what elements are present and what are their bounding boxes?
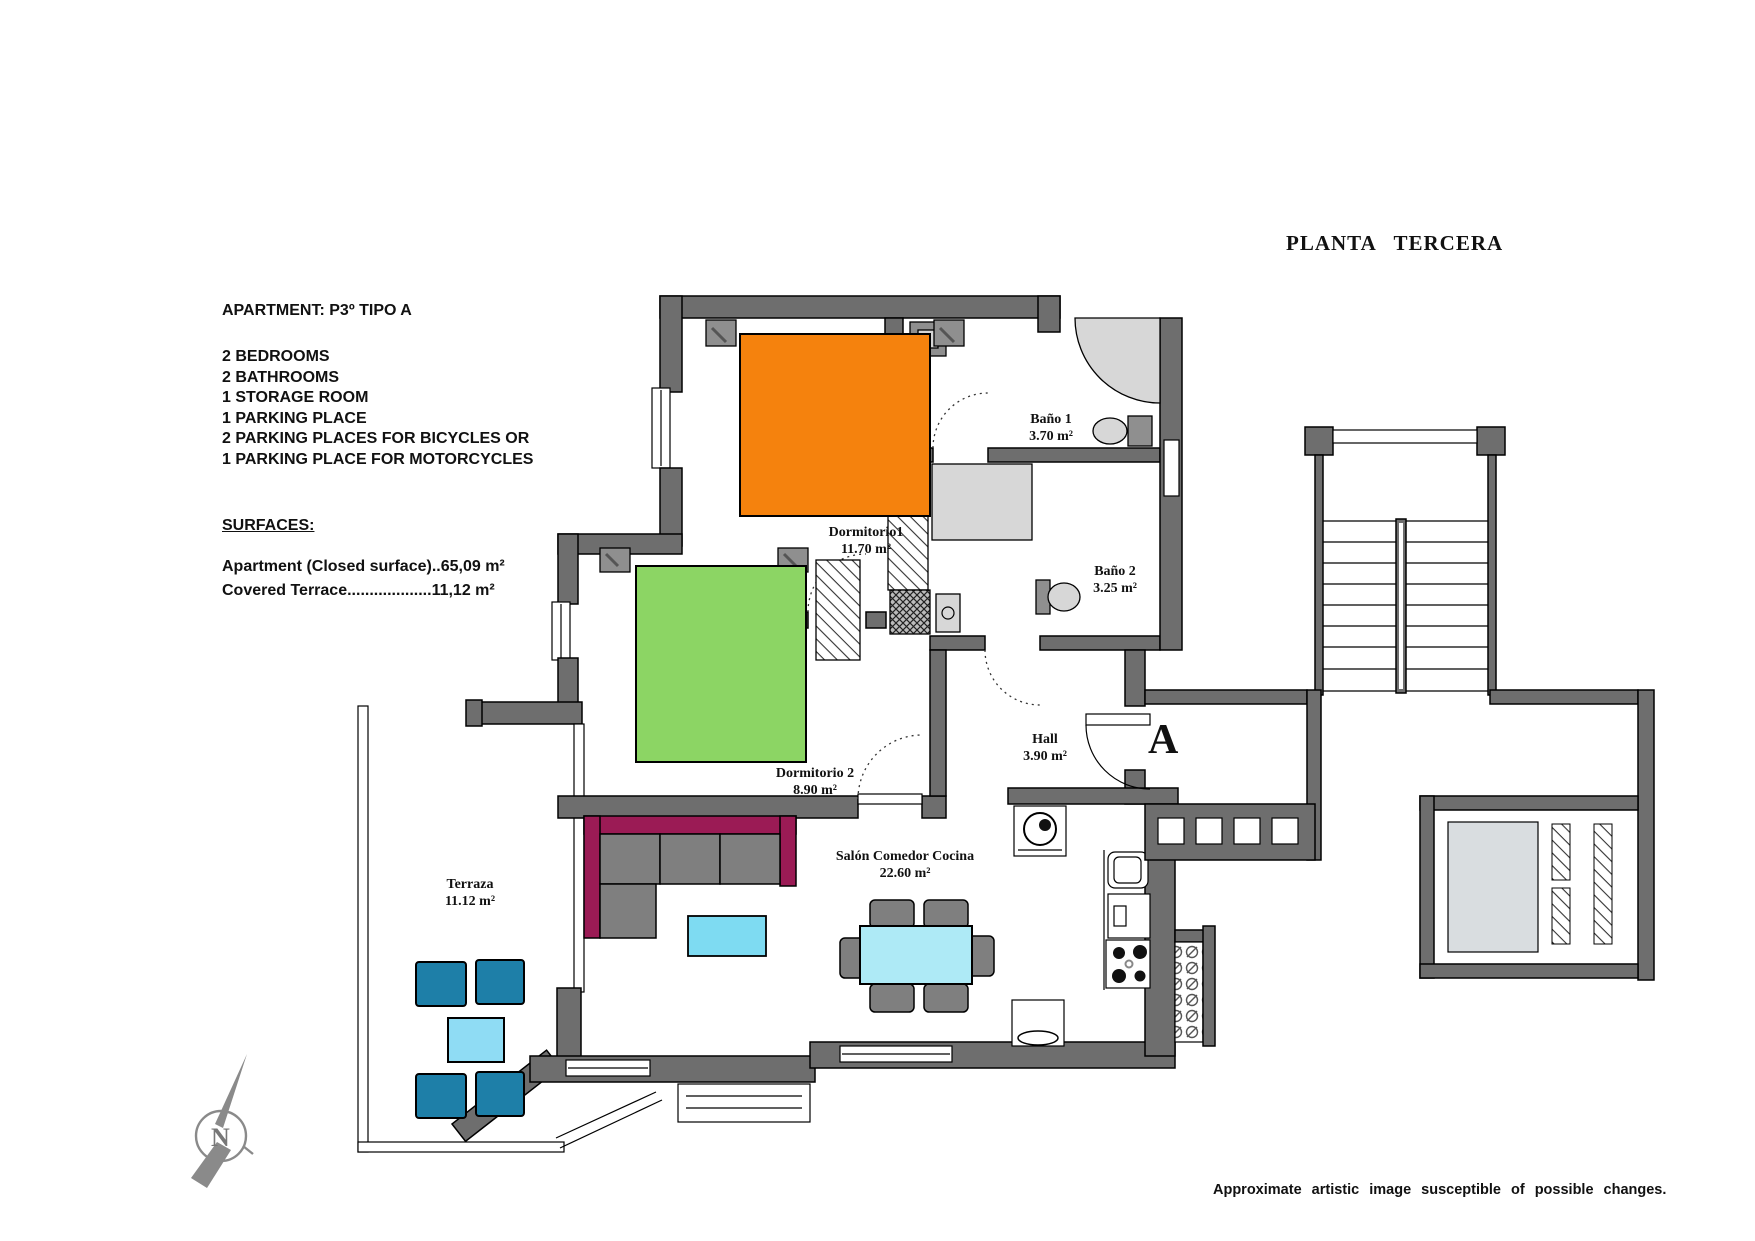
stair-treads-right xyxy=(1406,521,1488,691)
bed-bedroom2 xyxy=(636,566,806,762)
room-label-dormitorio2: Dormitorio 2 8.90 m² xyxy=(745,765,885,799)
room-label-terraza: Terraza 11.12 m² xyxy=(400,876,540,910)
sofa-cushion-1 xyxy=(600,834,660,884)
surface-item: Covered Terrace...................11,12 … xyxy=(222,579,505,603)
door-arc-bath1 xyxy=(933,393,988,448)
page-title: PLANTA TERCERA xyxy=(1286,231,1503,256)
sofa-cushion-3 xyxy=(720,834,780,884)
feature-item: 1 PARKING PLACE FOR MOTORCYCLES xyxy=(222,450,533,471)
burner-2 xyxy=(1133,945,1147,959)
feature-list: 2 BEDROOMS 2 BATHROOMS 1 STORAGE ROOM 1 … xyxy=(222,347,533,470)
dining-table xyxy=(860,926,972,984)
wall-top-right-pillar xyxy=(1038,296,1060,332)
wall-bedroom2-bottom xyxy=(558,796,858,818)
wardrobe-bedroom2 xyxy=(816,560,860,660)
stairwell xyxy=(1145,427,1638,860)
stair-top-beam xyxy=(1333,430,1477,443)
wall-storage-right xyxy=(1203,926,1215,1046)
bed-bedroom1 xyxy=(740,334,930,516)
sink-bath2 xyxy=(936,594,960,632)
terrace-chair-1 xyxy=(416,962,466,1006)
wall-bath1-bottom-b xyxy=(988,448,1160,462)
feature-item: 2 BEDROOMS xyxy=(222,347,533,368)
shaft-column xyxy=(890,590,930,634)
stair-divider-core xyxy=(1399,523,1403,689)
terrace-chair-2 xyxy=(476,960,524,1004)
sofa-arm-right xyxy=(780,816,796,886)
shower-bath1 xyxy=(1075,318,1160,403)
elevator-wall-top xyxy=(1420,796,1638,810)
stair-treads-left xyxy=(1323,521,1396,691)
terrace-chair-3 xyxy=(416,1074,466,1118)
room-name: Hall xyxy=(1032,732,1058,747)
wall-terrace-top xyxy=(478,702,582,724)
stair-pillar-left xyxy=(1305,427,1333,455)
railing-diagonal xyxy=(556,1092,662,1148)
wall-stair-bottom-right xyxy=(1490,690,1638,704)
nightstand-bedroom2-left xyxy=(600,548,630,572)
elevator-car xyxy=(1448,822,1538,952)
burner-4 xyxy=(1135,971,1146,982)
room-area: 3.25 m² xyxy=(1050,580,1180,597)
wall-bath2-bottom-b xyxy=(1040,636,1160,650)
walkway-opening-3 xyxy=(1234,818,1260,844)
dining-chair-bottom-2 xyxy=(924,984,968,1012)
wall-kitchen-top xyxy=(1008,788,1178,804)
wall-top xyxy=(660,296,1060,318)
walkway-opening-2 xyxy=(1196,818,1222,844)
feature-item: 2 BATHROOMS xyxy=(222,368,533,389)
storage-room-hatch xyxy=(1175,942,1203,1042)
burner-1 xyxy=(1113,947,1125,959)
sofa-cushion-2 xyxy=(660,834,720,884)
room-label-dormitorio1: Dormitorio1 11.70 m² xyxy=(796,524,936,558)
kitchen-counter-bottom xyxy=(1012,1000,1064,1046)
stair-pillar-right xyxy=(1477,427,1505,455)
elevator-wall-left xyxy=(1420,796,1434,978)
toilet-bath1-tank xyxy=(1128,416,1152,446)
compass-needle xyxy=(215,1054,247,1128)
burner-3 xyxy=(1112,969,1126,983)
footer-note: Approximate artistic image susceptible o… xyxy=(1213,1182,1666,1198)
sofa-back-top xyxy=(584,816,796,834)
elevator-hatch-1 xyxy=(1552,824,1570,880)
walkway-opening-4 xyxy=(1272,818,1298,844)
feature-item: 2 PARKING PLACES FOR BICYCLES OR xyxy=(222,429,533,450)
wall-hall-left xyxy=(930,650,946,796)
wall-bath2-bottom-a xyxy=(930,636,985,650)
walkway xyxy=(1145,804,1315,860)
room-name: Terraza xyxy=(447,877,494,892)
terrace-table xyxy=(448,1018,504,1062)
coffee-table xyxy=(688,916,766,956)
surfaces-heading: SURFACES: xyxy=(222,517,314,535)
terrace-post xyxy=(466,700,482,726)
room-area: 8.90 m² xyxy=(745,782,885,799)
door-arc-bath2 xyxy=(985,650,1040,705)
entrance-porch-steps xyxy=(678,1084,810,1122)
room-area: 3.90 m² xyxy=(975,748,1115,765)
railing-left xyxy=(358,706,368,1152)
room-label-hall: Hall 3.90 m² xyxy=(975,731,1115,765)
room-name: Dormitorio1 xyxy=(829,525,904,540)
terrace-furniture xyxy=(416,960,524,1118)
walkway-opening-1 xyxy=(1158,818,1184,844)
wall-hall-right-upper xyxy=(1125,650,1145,706)
compass-icon: N xyxy=(191,1054,253,1188)
shower-bath2 xyxy=(932,464,1032,540)
living-room-furniture xyxy=(584,816,994,1012)
wall-far-right xyxy=(1638,690,1654,980)
wall-left-upper xyxy=(660,296,682,392)
room-name: Dormitorio 2 xyxy=(776,766,854,781)
terrace-chair-4 xyxy=(476,1072,524,1116)
dining-chair-top-1 xyxy=(870,900,914,928)
feature-item: 1 PARKING PLACE xyxy=(222,409,533,430)
wall-landing-top xyxy=(1145,690,1307,704)
wall-bedroom2-left-upper xyxy=(558,534,578,604)
stair-wall-left xyxy=(1315,455,1323,695)
feature-item: 1 STORAGE ROOM xyxy=(222,388,533,409)
room-area: 11.12 m² xyxy=(400,893,540,910)
floor-plan-drawing: N xyxy=(0,0,1755,1241)
sofa-cushion-4 xyxy=(600,884,656,938)
floor-plan-page: N PLANTA TERCERA APARTMENT: P3º TIPO A 2… xyxy=(0,0,1755,1241)
room-name: Salón Comedor Cocina xyxy=(836,849,974,864)
room-name: Baño 2 xyxy=(1094,564,1136,579)
door-leaf-entrance xyxy=(1086,714,1150,725)
section-letter: A xyxy=(1148,716,1178,764)
window-bath xyxy=(1164,440,1179,496)
apartment-heading: APARTMENT: P3º TIPO A xyxy=(222,301,412,322)
room-area: 11.70 m² xyxy=(796,541,936,558)
compass-tick xyxy=(243,1146,253,1154)
elevator-block xyxy=(1420,690,1654,980)
dining-chair-top-2 xyxy=(924,900,968,928)
room-label-salon: Salón Comedor Cocina 22.60 m² xyxy=(825,848,985,882)
elevator-hatch-2 xyxy=(1552,888,1570,944)
kitchen-fixtures xyxy=(1012,806,1150,1046)
room-area: 3.70 m² xyxy=(986,428,1116,445)
room-area: 22.60 m² xyxy=(825,865,985,882)
elevator-hatch-3 xyxy=(1594,824,1612,944)
surface-item: Apartment (Closed surface)..65,09 m² xyxy=(222,555,505,579)
sofa-back-left xyxy=(584,816,600,938)
glass-wall-living-terrace xyxy=(574,724,584,992)
surfaces-list: Apartment (Closed surface)..65,09 m² Cov… xyxy=(222,555,505,603)
nightstand-bedroom1-right xyxy=(934,320,964,346)
room-label-bano1: Baño 1 3.70 m² xyxy=(986,411,1116,445)
railing-bottom xyxy=(358,1142,564,1152)
room-name: Baño 1 xyxy=(1030,412,1072,427)
dining-chair-bottom-1 xyxy=(870,984,914,1012)
wall-bedroom2-bottom-stub xyxy=(922,796,946,818)
washing-machine-door xyxy=(1039,819,1051,831)
elevator-wall-bottom xyxy=(1420,964,1638,978)
compass-n-label: N xyxy=(211,1123,230,1152)
nightstand-bedroom1-left xyxy=(706,320,736,346)
room-label-bano2: Baño 2 3.25 m² xyxy=(1050,563,1180,597)
stair-wall-right xyxy=(1488,455,1496,695)
wall-bedroom1-bottom-b xyxy=(866,612,886,628)
wall-living-bottom-left xyxy=(557,988,581,1058)
